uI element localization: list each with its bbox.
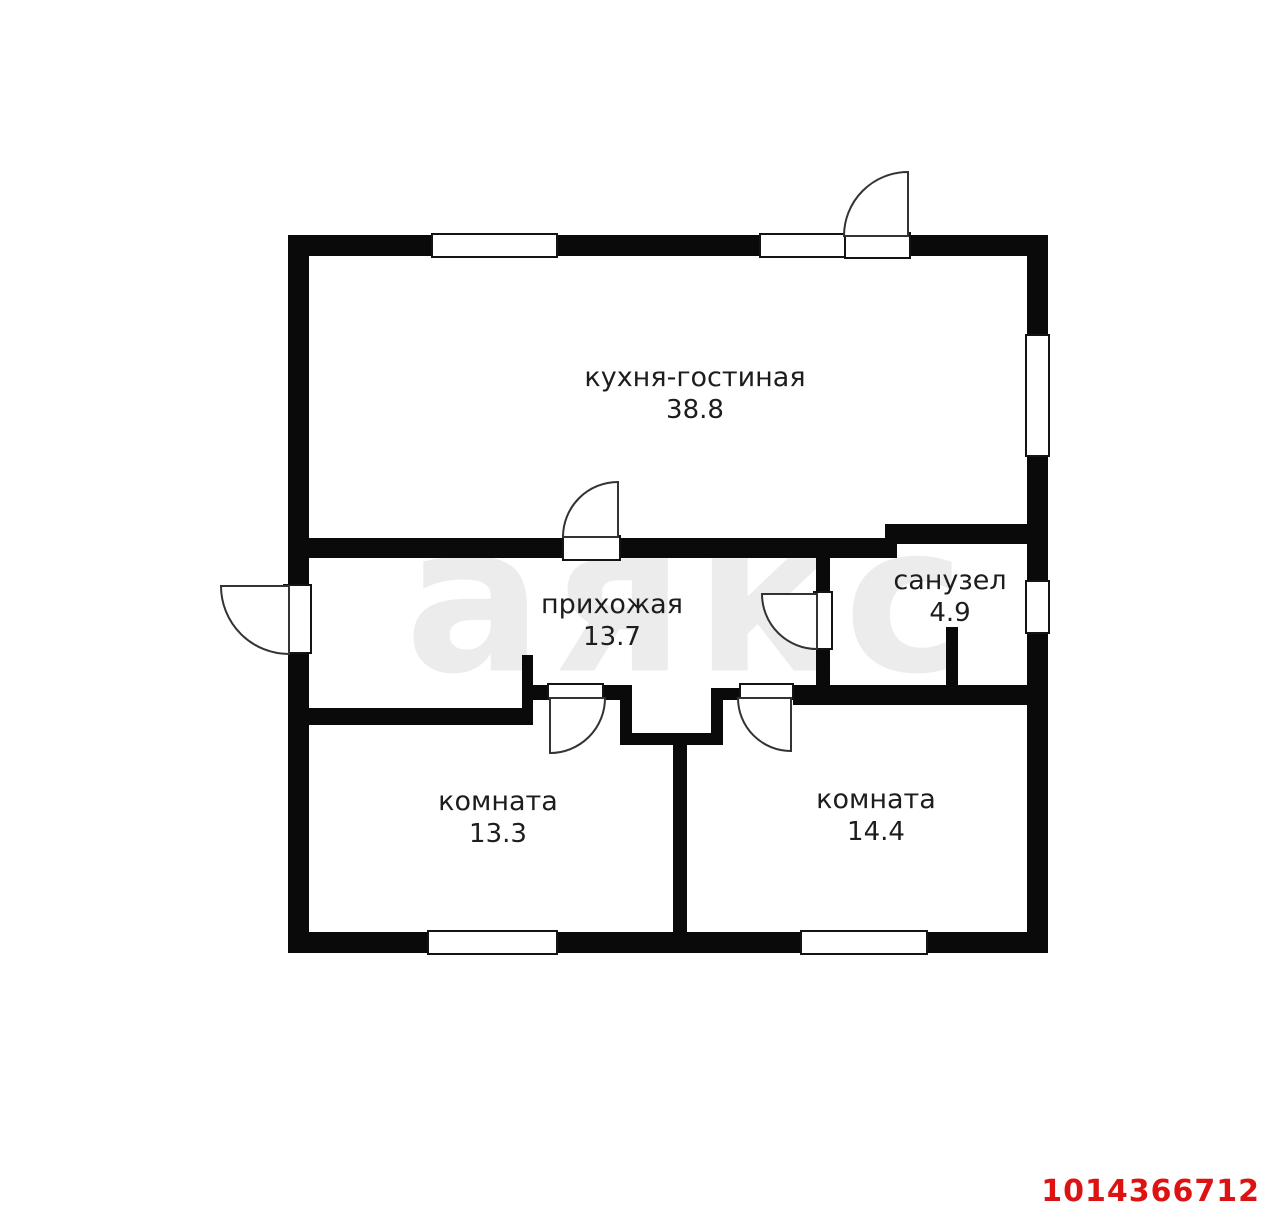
- room-label-room1: комната 13.3: [438, 785, 558, 851]
- wall-room2-door-left: [711, 688, 740, 700]
- wall-top: [288, 235, 1048, 256]
- door-swing-entrance: [221, 586, 289, 654]
- door-swing-room2: [738, 698, 791, 751]
- wall-bathroom-stub: [946, 627, 958, 687]
- wall-notch-right: [711, 700, 723, 745]
- room-label-hallway: прихожая 13.7: [541, 588, 683, 654]
- room-name: комната: [438, 785, 558, 818]
- wall-kitchen-bottom-mid: [620, 538, 897, 558]
- window-top-left: [432, 234, 557, 257]
- wall-rooms-divider: [673, 733, 687, 933]
- wall-hall-bottom-left: [309, 708, 533, 725]
- wall-step-join: [885, 524, 897, 558]
- door-swing-bathroom: [762, 594, 817, 649]
- room-label-kitchen-living: кухня-гостиная 38.8: [584, 361, 805, 427]
- door-sill-kitchen: [563, 536, 620, 560]
- door-sill-room1: [548, 684, 603, 699]
- door-swing-room1: [550, 698, 605, 753]
- room-name: кухня-гостиная: [584, 361, 805, 394]
- floor-plan-page: аякс: [0, 0, 1280, 1208]
- wall-hall-bottom-step: [533, 685, 548, 700]
- door-swing-kitchen: [563, 482, 618, 537]
- room-area: 38.8: [584, 394, 805, 427]
- room-area: 13.7: [541, 621, 683, 654]
- wall-notch-bottom: [620, 733, 723, 745]
- wall-bottom: [288, 932, 1048, 953]
- wall-kitchen-bottom-left: [309, 538, 563, 558]
- room-area: 13.3: [438, 818, 558, 851]
- window-bottom-left: [428, 931, 557, 954]
- wall-room2-top: [793, 685, 1028, 705]
- listing-id: 1014366712: [1041, 1174, 1260, 1208]
- door-swing-top-exterior: [844, 172, 908, 236]
- door-sill-room2: [740, 684, 793, 699]
- window-right-bathroom: [1026, 581, 1049, 633]
- room-label-bathroom: санузел 4.9: [893, 564, 1006, 630]
- room-area: 4.9: [893, 597, 1006, 630]
- room-name: комната: [816, 783, 936, 816]
- window-right-kitchen: [1026, 335, 1049, 456]
- wall-hall-closet-stub: [522, 655, 533, 725]
- door-swings: [221, 172, 908, 753]
- room-name: санузел: [893, 564, 1006, 597]
- wall-hall-bathroom-divider-upper: [816, 538, 830, 594]
- room-name: прихожая: [541, 588, 683, 621]
- room-label-room2: комната 14.4: [816, 783, 936, 849]
- wall-bathroom-top: [885, 524, 1028, 544]
- wall-hall-bathroom-divider-lower: [816, 648, 830, 688]
- room-area: 14.4: [816, 816, 936, 849]
- window-top-right: [760, 234, 845, 257]
- window-bottom-right: [801, 931, 927, 954]
